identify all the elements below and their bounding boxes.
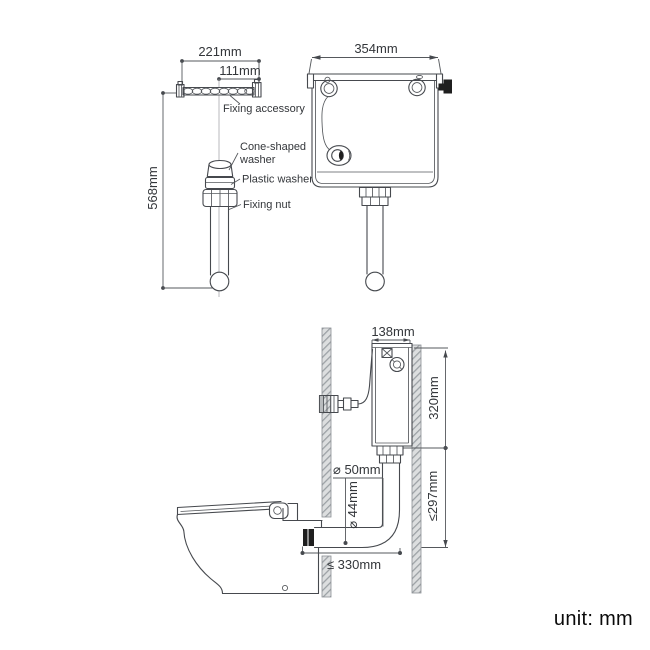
outlet-pipe-end xyxy=(366,272,385,291)
unit-note: unit: mm xyxy=(554,608,633,630)
front-panel-wall-upper xyxy=(322,328,331,517)
cistern-tank xyxy=(308,74,453,291)
dim-297: ≤297mm xyxy=(425,471,440,521)
technical-diagram-page: 221mm 111mm Fixin xyxy=(0,0,650,650)
rear-wall xyxy=(412,345,421,593)
dim-50: ⌀ 50mm xyxy=(333,462,381,477)
cistern-side-view xyxy=(372,344,412,464)
supply-hose xyxy=(358,350,373,405)
dim-320: 320mm xyxy=(426,376,441,419)
dim-111: 111mm xyxy=(219,63,260,78)
cistern-front-drawing: 354mm xyxy=(308,41,453,291)
outlet-connector xyxy=(303,529,314,546)
dim-44: ⌀ 44mm xyxy=(345,481,360,529)
label-fixing-nut: Fixing nut xyxy=(243,199,291,211)
dim-221: 221mm xyxy=(198,44,241,59)
seat-hinge xyxy=(270,503,289,519)
flush-valve-cap xyxy=(327,146,351,166)
label-cone-washer-line2: washer xyxy=(239,154,276,166)
dim-330: ≤ 330mm xyxy=(327,557,381,572)
label-plastic-washer: Plastic washer xyxy=(242,174,313,186)
pipe-open-end xyxy=(210,272,229,291)
base-bolt-cap xyxy=(282,585,287,590)
fixing-accessory-drawing: 221mm 111mm Fixin xyxy=(145,44,313,297)
valve-nut xyxy=(344,398,352,410)
outlet-nut-side xyxy=(377,446,403,463)
side-knob xyxy=(390,358,404,372)
installation-side-drawing: 138mm xyxy=(177,324,448,597)
label-cone-washer-line1: Cone-shaped xyxy=(240,141,306,153)
bottom-outlet xyxy=(360,188,391,291)
label-fixing-accessory: Fixing accessory xyxy=(223,103,305,115)
dim-138: 138mm xyxy=(371,324,414,339)
toilet-side-profile xyxy=(177,502,322,594)
flush-pipe-assembly xyxy=(203,161,237,291)
leader-cone-washer xyxy=(229,153,238,170)
plastic-washer xyxy=(206,178,235,189)
cistern-installation-diagram: 221mm 111mm Fixin xyxy=(0,0,650,650)
dim-568: 568mm xyxy=(145,166,160,209)
dim-354: 354mm xyxy=(354,41,397,56)
bowl-outline xyxy=(177,515,222,594)
